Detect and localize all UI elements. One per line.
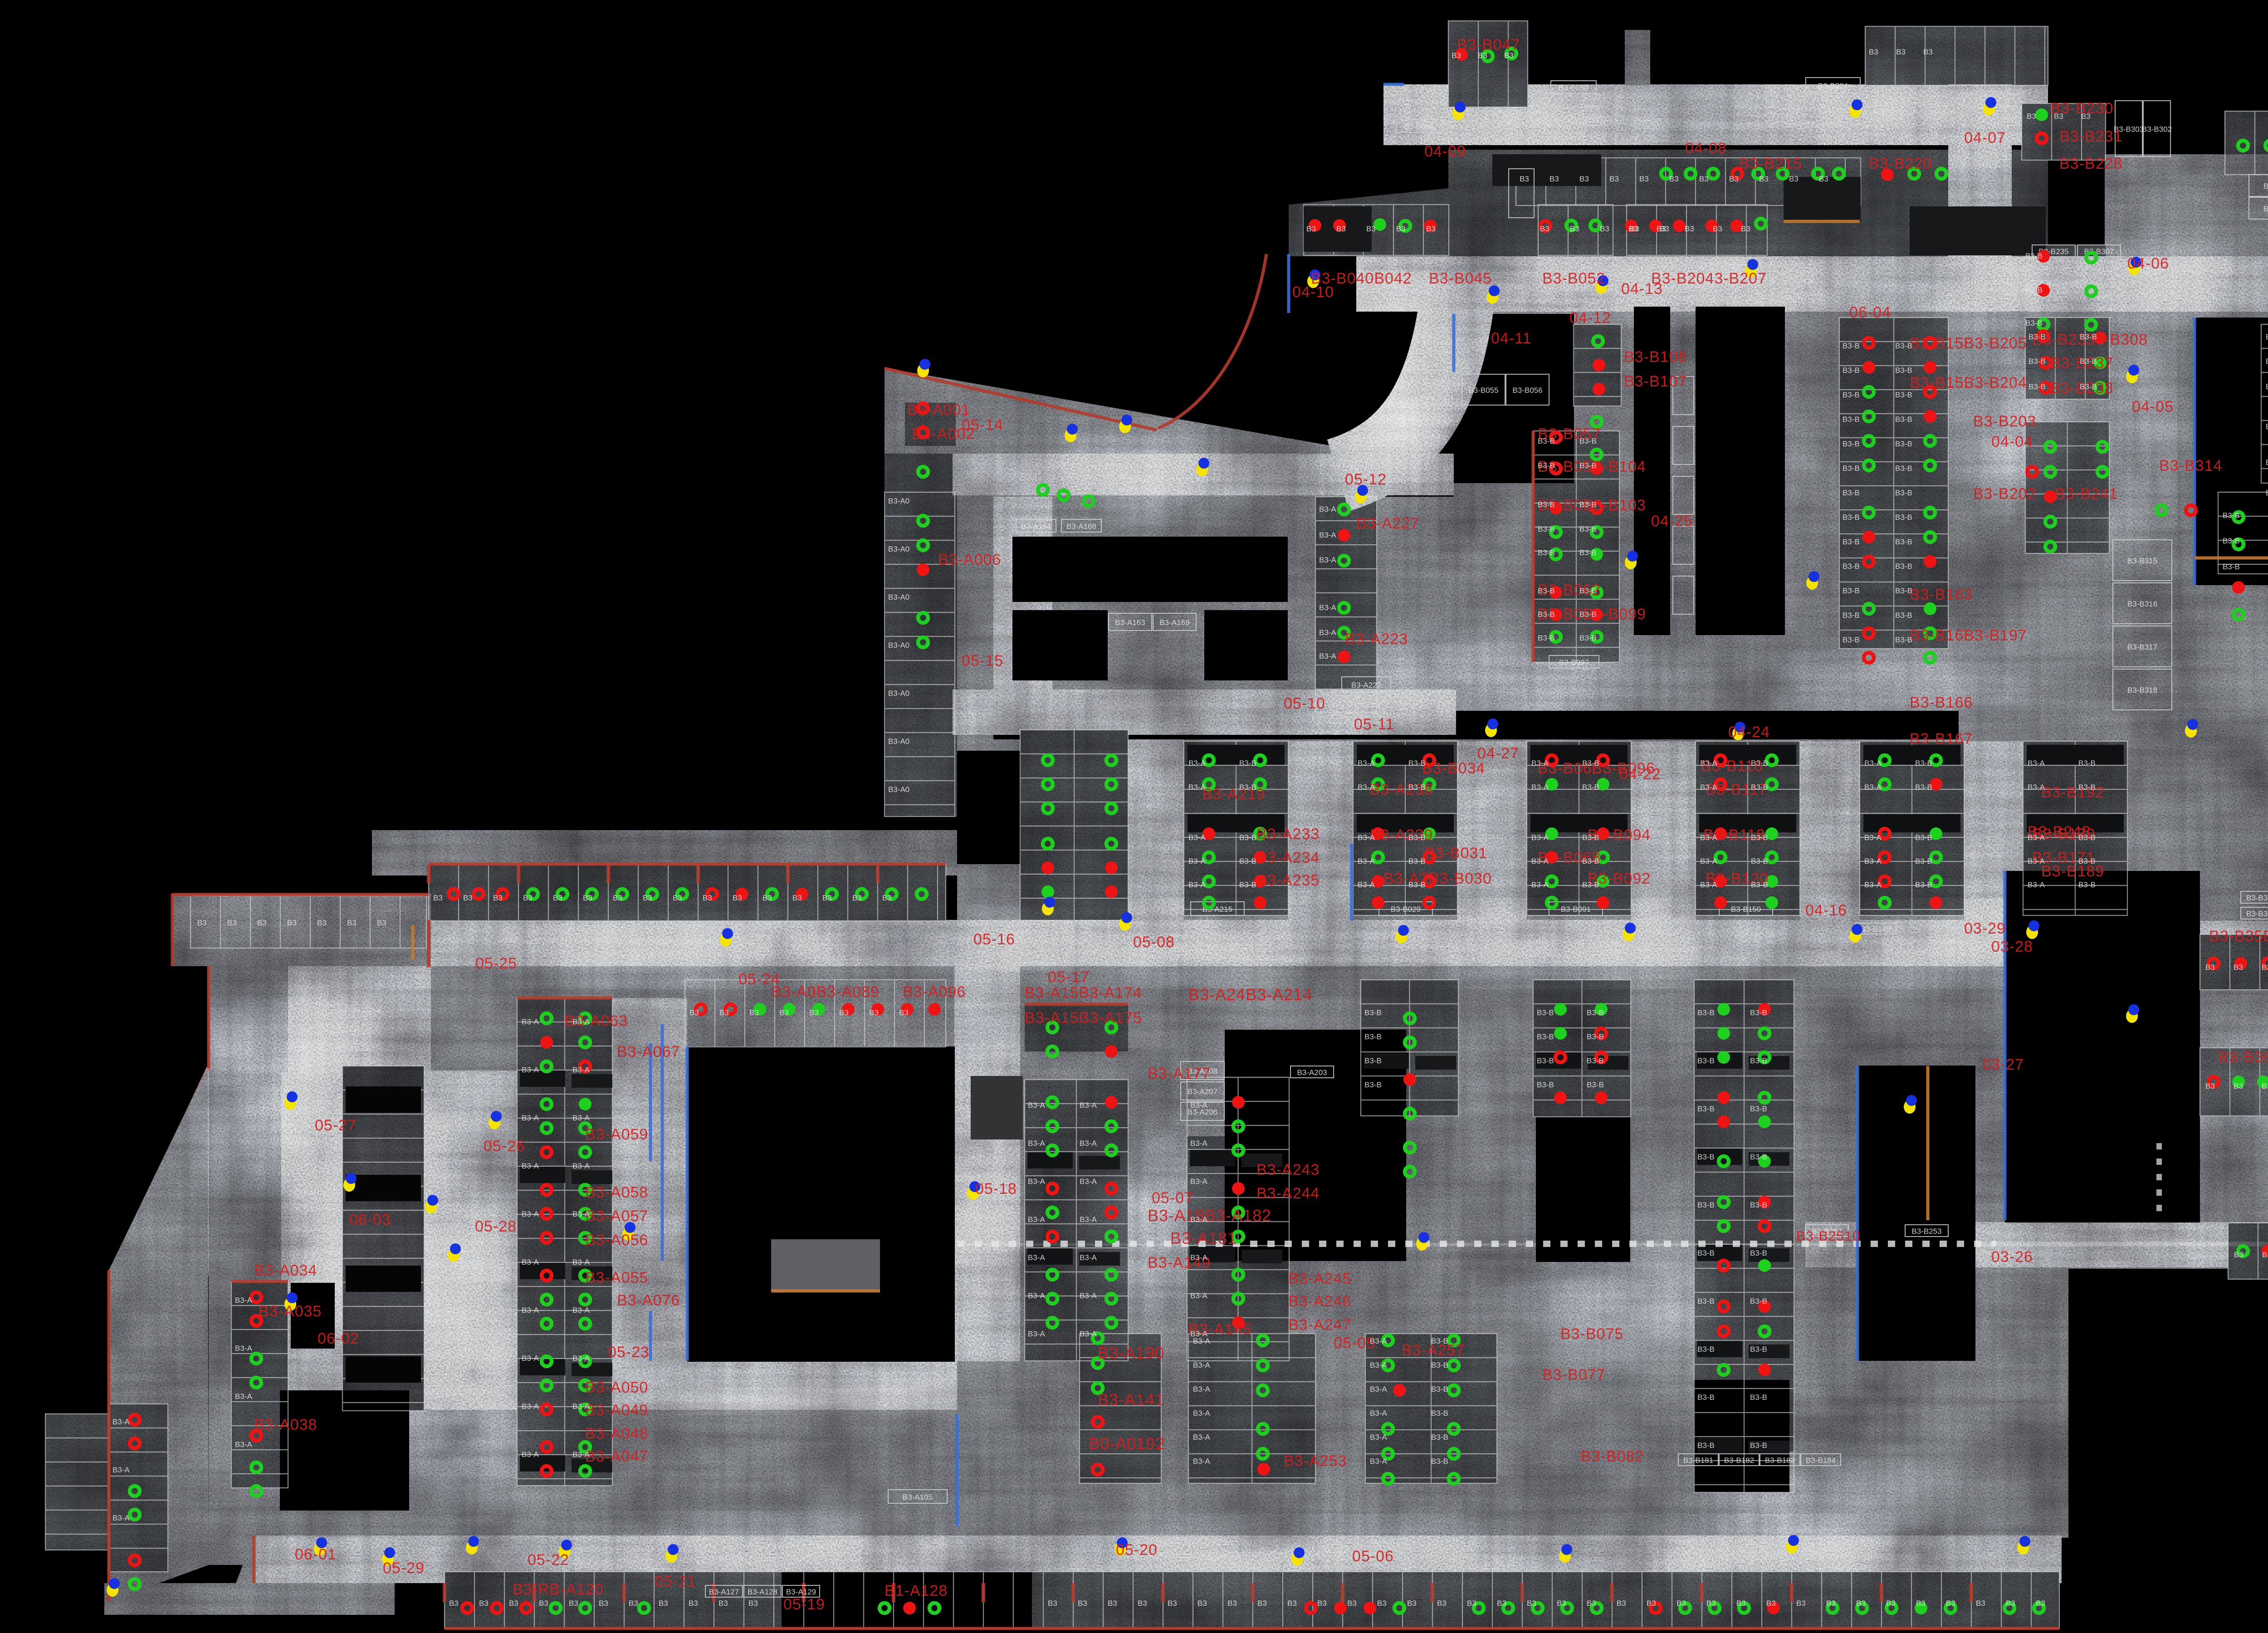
svg-text:B3-B2043-B207: B3-B2043-B207	[1651, 270, 1767, 287]
svg-text:B3-B: B3-B	[1431, 1337, 1448, 1345]
svg-text:B3: B3	[1452, 51, 1461, 60]
svg-text:B3-A0B3-A089: B3-A0B3-A089	[771, 983, 880, 1001]
svg-text:B3-B: B3-B	[1750, 1297, 1767, 1305]
svg-text:B3: B3	[2262, 1251, 2268, 1259]
svg-text:B3: B3	[1336, 225, 1346, 233]
svg-text:B3-B181: B3-B181	[1683, 1456, 1713, 1465]
svg-text:B3-B: B3-B	[1697, 1201, 1715, 1209]
svg-text:B3-B316: B3-B316	[2127, 600, 2157, 608]
svg-text:05-26: 05-26	[484, 1138, 525, 1155]
svg-text:B3-B: B3-B	[1915, 857, 1932, 865]
svg-text:05-07: 05-07	[1152, 1189, 1193, 1207]
svg-text:B3-B: B3-B	[2078, 833, 2096, 842]
svg-text:B3-B: B3-B	[1843, 538, 1860, 546]
svg-text:B3-B: B3-B	[1587, 1008, 1604, 1017]
svg-text:B3-B: B3-B	[1750, 1153, 1767, 1161]
svg-text:04-08: 04-08	[1685, 140, 1727, 157]
svg-text:B3-B: B3-B	[1579, 610, 1597, 619]
svg-text:B3-A: B3-A	[1080, 1253, 1097, 1262]
svg-text:B3: B3	[1713, 225, 1722, 233]
svg-text:05-23: 05-23	[608, 1344, 650, 1361]
svg-text:B3: B3	[719, 1008, 729, 1017]
svg-text:B3-B: B3-B	[2223, 537, 2240, 545]
svg-text:B3-A105: B3-A105	[903, 1493, 933, 1501]
svg-text:B3: B3	[882, 894, 892, 902]
svg-text:B3-A: B3-A	[235, 1440, 252, 1449]
svg-text:05-18: 05-18	[975, 1180, 1017, 1198]
svg-text:B3-A207: B3-A207	[1188, 1087, 1217, 1096]
svg-text:B3-B149: B3-B149	[1861, 925, 1891, 934]
svg-text:B3: B3	[479, 1599, 489, 1608]
svg-text:B3-A: B3-A	[1531, 857, 1549, 865]
svg-text:06-03: 06-03	[349, 1211, 391, 1228]
svg-text:B3-B: B3-B	[2223, 511, 2240, 520]
svg-text:B3: B3	[2262, 1082, 2268, 1090]
svg-text:B3-A247: B3-A247	[1288, 1316, 1351, 1334]
svg-text:B3-A: B3-A	[1190, 1253, 1207, 1262]
svg-text:B3-B220: B3-B220	[1869, 155, 1932, 172]
svg-text:B3: B3	[1407, 1599, 1417, 1608]
svg-text:B3: B3	[1647, 1599, 1656, 1608]
svg-text:B3-A049: B3-A049	[585, 1402, 648, 1419]
svg-text:B3-A: B3-A	[522, 1306, 539, 1315]
svg-text:B3-B: B3-B	[1843, 415, 1860, 424]
svg-text:B3: B3	[257, 919, 267, 927]
svg-text:B3: B3	[197, 919, 207, 927]
svg-text:B3-B: B3-B	[1579, 437, 1597, 445]
svg-text:B3-B: B3-B	[2025, 286, 2043, 294]
svg-text:B3: B3	[643, 894, 652, 902]
svg-text:B3: B3	[347, 919, 357, 927]
svg-text:B3: B3	[1923, 48, 1933, 56]
svg-text:B3-A: B3-A	[1080, 1139, 1097, 1148]
svg-text:B3-A056: B3-A056	[585, 1232, 648, 1249]
svg-text:B3-B: B3-B	[1895, 562, 1912, 571]
svg-text:B3-A177: B3-A177	[1148, 1065, 1211, 1082]
svg-text:B3-B224: B3-B224	[1818, 82, 1848, 90]
svg-text:05-28: 05-28	[475, 1218, 517, 1235]
svg-text:05-27: 05-27	[315, 1117, 357, 1134]
svg-text:B3-A: B3-A	[1193, 1385, 1210, 1393]
svg-text:B3-A: B3-A	[1028, 1291, 1045, 1300]
svg-text:B3-B077: B3-B077	[1542, 1366, 1605, 1384]
svg-text:B3: B3	[1699, 175, 1709, 183]
svg-text:B3: B3	[1657, 225, 1666, 233]
svg-text:B3: B3	[1048, 1599, 1057, 1608]
svg-text:B3-A2B3-B030: B3-A2B3-B030	[1383, 870, 1492, 887]
svg-text:B3-B183: B3-B183	[1765, 1456, 1795, 1465]
svg-text:B3-A006: B3-A006	[938, 551, 1001, 568]
svg-text:B3: B3	[2262, 963, 2268, 972]
svg-text:B3-A203: B3-A203	[1297, 1068, 1327, 1077]
svg-text:B3-B: B3-B	[1538, 610, 1555, 619]
svg-text:B3-A168: B3-A168	[1066, 522, 1096, 531]
svg-text:B3-B: B3-B	[1697, 1153, 1715, 1161]
svg-text:B3-B346: B3-B346	[2246, 909, 2268, 918]
svg-text:B3: B3	[1677, 1599, 1686, 1608]
svg-text:B3: B3	[1426, 225, 1436, 233]
svg-text:B3: B3	[2081, 112, 2091, 121]
svg-text:B3-A: B3-A	[1531, 833, 1549, 842]
svg-text:B3-B052: B3-B052	[1542, 270, 1605, 287]
svg-text:B3: B3	[703, 894, 712, 902]
svg-text:B3-B: B3-B	[1750, 1201, 1767, 1209]
svg-text:B3-A: B3-A	[112, 1418, 130, 1426]
svg-text:B3: B3	[1856, 1599, 1866, 1608]
svg-text:B3-A: B3-A	[235, 1344, 252, 1353]
svg-text:05-12: 05-12	[1345, 471, 1387, 488]
svg-text:B3: B3	[287, 919, 297, 927]
svg-text:05-15: 05-15	[962, 652, 1003, 670]
svg-text:B3-A181: B3-A181	[1170, 1229, 1237, 1247]
svg-text:05-25: 05-25	[475, 955, 517, 972]
svg-text:B3-B034: B3-B034	[1422, 760, 1485, 777]
svg-text:B3-A244: B3-A244	[1256, 1185, 1320, 1202]
svg-text:B3: B3	[1579, 175, 1589, 183]
svg-text:B3: B3	[1789, 175, 1799, 183]
svg-text:B3-A: B3-A	[2028, 857, 2045, 865]
svg-text:B3-B166: B3-B166	[1910, 694, 1973, 711]
svg-text:B3-B: B3-B	[1895, 342, 1912, 350]
svg-text:B3-B: B3-B	[1751, 857, 1768, 865]
svg-text:03-29: 03-29	[1964, 920, 2006, 937]
svg-text:B3: B3	[2036, 1599, 2045, 1608]
svg-text:B3-B: B3-B	[1579, 587, 1597, 595]
svg-text:B3-B029: B3-B029	[1391, 905, 1421, 914]
svg-text:B3-B35B3-B354: B3-B35B3-B354	[2209, 928, 2268, 945]
svg-text:B3-B16B3-B197: B3-B16B3-B197	[1910, 627, 2027, 644]
svg-text:B3-A: B3-A	[1358, 857, 1375, 865]
svg-text:B3-B: B3-B	[1697, 1105, 1715, 1113]
svg-text:B3: B3	[809, 1008, 819, 1017]
svg-text:B3-B: B3-B	[1408, 783, 1426, 792]
svg-text:B3: B3	[1819, 175, 1828, 183]
svg-text:B3-A127: B3-A127	[709, 1588, 739, 1596]
svg-text:B3-A234: B3-A234	[1256, 849, 1320, 866]
svg-text:B3-B: B3-B	[2028, 382, 2046, 391]
svg-text:B3: B3	[1504, 51, 1514, 60]
svg-text:B3: B3	[539, 1599, 548, 1608]
svg-text:B3-A169: B3-A169	[1159, 618, 1189, 627]
svg-text:B3-A: B3-A	[1370, 1457, 1387, 1466]
svg-text:B3-A: B3-A	[1080, 1291, 1097, 1300]
svg-text:B3-B: B3-B	[1538, 634, 1555, 642]
svg-text:B3-B369: B3-B369	[2218, 1049, 2268, 1066]
svg-text:B3-A: B3-A	[1188, 759, 1206, 768]
svg-text:B3-A055: B3-A055	[585, 1269, 648, 1286]
svg-text:B3: B3	[553, 894, 562, 902]
svg-text:B3-B: B3-B	[1895, 415, 1912, 424]
svg-text:B3: B3	[613, 894, 622, 902]
svg-text:B3: B3	[1549, 175, 1559, 183]
svg-text:B3-B: B3-B	[1750, 1441, 1767, 1450]
svg-text:B3: B3	[1478, 51, 1487, 60]
svg-text:B3-B202: B3-B202	[1973, 485, 2036, 503]
svg-text:B3-B: B3-B	[1579, 525, 1597, 533]
svg-text:B3-B: B3-B	[1697, 1441, 1715, 1450]
svg-text:B3-A: B3-A	[1700, 759, 1717, 768]
svg-text:B3-B: B3-B	[1239, 880, 1256, 889]
svg-text:B3-B318: B3-B318	[2127, 686, 2157, 694]
svg-text:B3: B3	[2006, 1599, 2015, 1608]
svg-text:B3-B055: B3-B055	[1468, 386, 1498, 395]
svg-text:B3-B2510: B3-B2510	[1796, 1229, 1860, 1244]
svg-text:B3: B3	[839, 1008, 849, 1017]
svg-text:B3-A: B3-A	[572, 1402, 590, 1411]
svg-text:B3-A: B3-A	[1700, 880, 1717, 889]
svg-text:B3: B3	[1540, 225, 1549, 233]
svg-text:05-20: 05-20	[1116, 1541, 1158, 1559]
svg-text:05-22: 05-22	[528, 1551, 569, 1569]
svg-text:B3: B3	[377, 919, 386, 927]
svg-text:B3-B: B3-B	[1697, 1249, 1715, 1257]
svg-text:B3-B15B3-B204: B3-B15B3-B204	[1910, 374, 2027, 391]
svg-text:B3-A: B3-A	[1358, 880, 1375, 889]
svg-text:B3: B3	[869, 1008, 879, 1017]
svg-text:B3-A: B3-A	[572, 1017, 590, 1026]
svg-text:B3-A164: B3-A164	[1021, 522, 1051, 531]
svg-text:B3-B: B3-B	[1431, 1385, 1448, 1393]
svg-text:B3-B: B3-B	[1239, 783, 1256, 792]
svg-text:B3-B: B3-B	[2025, 252, 2043, 260]
svg-text:B3-B: B3-B	[1915, 833, 1932, 842]
svg-text:03-26: 03-26	[1991, 1248, 2033, 1266]
svg-text:B3: B3	[763, 894, 772, 902]
svg-text:B3-A0: B3-A0	[888, 641, 909, 650]
svg-text:B3: B3	[1869, 48, 1878, 56]
svg-text:B3-B184: B3-B184	[1806, 1456, 1836, 1465]
svg-text:05-24: 05-24	[738, 971, 780, 988]
svg-text:B3-B: B3-B	[1582, 783, 1599, 792]
svg-text:B3-A034: B3-A034	[254, 1262, 317, 1279]
svg-text:B3-B: B3-B	[2223, 562, 2240, 571]
svg-text:B3-B: B3-B	[1538, 500, 1555, 509]
svg-text:B3-B: B3-B	[1697, 1393, 1715, 1402]
svg-text:B3: B3	[463, 894, 473, 902]
svg-text:B3: B3	[1306, 225, 1316, 233]
svg-text:B3-B045: B3-B045	[1429, 270, 1492, 287]
svg-text:B3: B3	[1570, 225, 1579, 233]
svg-text:B3-A: B3-A	[1319, 505, 1336, 513]
svg-text:B3-A: B3-A	[1028, 1253, 1045, 1262]
svg-text:B3-B: B3-B	[2078, 783, 2096, 792]
svg-text:B3-B: B3-B	[1895, 440, 1912, 448]
svg-text:B3-A: B3-A	[235, 1296, 252, 1305]
svg-text:B3: B3	[1527, 1599, 1536, 1608]
svg-text:B3: B3	[1685, 225, 1694, 233]
svg-text:B3-A: B3-A	[2028, 833, 2045, 842]
svg-text:B3-B: B3-B	[1431, 1433, 1448, 1442]
svg-text:B3-B: B3-B	[1431, 1409, 1448, 1418]
svg-text:B3-B: B3-B	[1750, 1345, 1767, 1354]
svg-text:B3: B3	[1609, 175, 1619, 183]
svg-text:B3-B163: B3-B163	[1910, 586, 1973, 603]
svg-text:04-07: 04-07	[1964, 129, 2006, 147]
svg-text:B3-A24B3-A214: B3-A24B3-A214	[1188, 985, 1312, 1004]
svg-text:B3-B082: B3-B082	[1581, 1448, 1644, 1465]
svg-text:B3-A: B3-A	[1190, 1291, 1207, 1300]
svg-text:B3-A227: B3-A227	[1356, 515, 1419, 532]
svg-text:B3-B: B3-B	[1751, 880, 1768, 889]
svg-text:B3: B3	[1976, 1599, 1985, 1608]
svg-text:04-24: 04-24	[1728, 724, 1770, 741]
svg-text:05-19: 05-19	[783, 1596, 825, 1613]
svg-text:B3: B3	[779, 1008, 789, 1017]
svg-text:B3-A: B3-A	[522, 1258, 539, 1266]
svg-text:B3: B3	[673, 894, 682, 902]
svg-text:B3-A: B3-A	[1370, 1337, 1387, 1345]
svg-text:B3-B: B3-B	[1364, 1056, 1382, 1065]
svg-text:B3-A: B3-A	[112, 1514, 130, 1522]
svg-text:B3: B3	[509, 1599, 518, 1608]
svg-text:B3: B3	[1497, 1599, 1506, 1608]
svg-text:B3-B: B3-B	[1895, 513, 1912, 522]
svg-text:B3-A: B3-A	[1319, 531, 1336, 539]
svg-text:B3-A: B3-A	[522, 1210, 539, 1218]
svg-text:B3-B: B3-B	[1750, 1105, 1767, 1113]
svg-text:B3-A253: B3-A253	[1284, 1452, 1347, 1470]
svg-text:B3-B: B3-B	[1895, 391, 1912, 399]
svg-text:04-06: 04-06	[2127, 255, 2169, 272]
svg-text:B3-A: B3-A	[1319, 652, 1336, 660]
svg-text:B3: B3	[1168, 1599, 1177, 1608]
svg-text:B3-A: B3-A	[522, 1017, 539, 1026]
svg-text:B3-A: B3-A	[1370, 1385, 1387, 1393]
svg-text:B3: B3	[852, 894, 862, 902]
svg-text:B0-A0192: B0-A0192	[1089, 1434, 1165, 1453]
svg-text:04-27: 04-27	[1477, 745, 1519, 762]
svg-text:B3-A245: B3-A245	[1288, 1270, 1351, 1287]
svg-text:B3-A: B3-A	[572, 1258, 590, 1266]
svg-text:04-09: 04-09	[1424, 143, 1466, 160]
svg-text:B3-A050: B3-A050	[585, 1379, 648, 1396]
svg-text:B3: B3	[689, 1008, 699, 1017]
svg-text:B3: B3	[1467, 1599, 1476, 1608]
svg-text:B3-A067: B3-A067	[617, 1043, 680, 1061]
svg-text:B3: B3	[1078, 1599, 1087, 1608]
svg-text:B3-B031: B3-B031	[1424, 845, 1487, 862]
svg-text:05-29: 05-29	[383, 1560, 425, 1577]
svg-text:B3-A096: B3-A096	[903, 983, 966, 1001]
svg-text:B3-B: B3-B	[1895, 611, 1912, 620]
svg-text:B3: B3	[629, 1599, 638, 1608]
svg-text:B3: B3	[1587, 1599, 1596, 1608]
svg-text:B3-A: B3-A	[1190, 1101, 1207, 1110]
svg-text:B3-B: B3-B	[1843, 464, 1860, 473]
svg-text:B3-A: B3-A	[1080, 1101, 1097, 1110]
svg-text:B3-A: B3-A	[1193, 1433, 1210, 1442]
svg-text:B3-A: B3-A	[1864, 833, 1882, 842]
svg-text:B3-B: B3-B	[1895, 587, 1912, 595]
svg-text:B3-A129: B3-A129	[786, 1588, 816, 1596]
svg-text:B3-B: B3-B	[1895, 489, 1912, 497]
svg-text:B3-A: B3-A	[1080, 1215, 1097, 1224]
svg-text:B3-B: B3-B	[1408, 833, 1426, 842]
svg-text:B3: B3	[1796, 1599, 1806, 1608]
svg-text:B3-A: B3-A	[1028, 1139, 1045, 1148]
svg-text:B3-A0: B3-A0	[888, 689, 909, 698]
svg-text:B3: B3	[1347, 1599, 1357, 1608]
svg-text:03-28: 03-28	[1991, 938, 2033, 955]
svg-text:B3-B097: B3-B097	[1559, 658, 1589, 667]
svg-text:B3-B: B3-B	[1843, 440, 1860, 448]
svg-text:B3-B: B3-B	[1537, 1032, 1554, 1041]
svg-text:B3-A: B3-A	[1864, 857, 1882, 865]
svg-text:B3: B3	[1916, 1599, 1926, 1608]
svg-text:B3: B3	[2234, 1082, 2243, 1090]
svg-text:B3-A222: B3-A222	[1351, 681, 1381, 689]
svg-text:B3: B3	[1366, 225, 1376, 233]
svg-text:B3: B3	[2234, 1251, 2244, 1259]
svg-text:B3: B3	[1886, 1599, 1896, 1608]
svg-text:B3-A0: B3-A0	[888, 545, 909, 553]
svg-text:B3-A: B3-A	[1700, 857, 1717, 865]
svg-text:B3-B: B3-B	[2080, 357, 2097, 366]
svg-text:B3-A: B3-A	[1531, 759, 1549, 768]
svg-text:B3-B: B3-B	[2028, 357, 2046, 366]
svg-text:B3-A15B3-A175: B3-A15B3-A175	[1025, 1009, 1142, 1027]
svg-text:B3-A058: B3-A058	[585, 1184, 648, 1201]
svg-text:B3-A: B3-A	[1700, 833, 1717, 842]
svg-text:04-04: 04-04	[1991, 433, 2033, 450]
svg-text:B3-A: B3-A	[522, 1066, 539, 1074]
svg-text:B3-A: B3-A	[1319, 603, 1336, 612]
svg-text:B3-B: B3-B	[1697, 1056, 1715, 1065]
svg-text:B3-B: B3-B	[1431, 1457, 1448, 1466]
svg-text:B3-A059: B3-A059	[585, 1126, 648, 1143]
svg-text:B3-B: B3-B	[2078, 857, 2096, 865]
svg-text:B3-B: B3-B	[2080, 382, 2097, 391]
svg-text:B3-B: B3-B	[1538, 461, 1555, 470]
svg-text:B3-B182: B3-B182	[1724, 1456, 1754, 1465]
svg-text:B3-B: B3-B	[1915, 880, 1932, 889]
svg-text:B1-A128: B1-A128	[885, 1582, 948, 1599]
svg-text:B3-B: B3-B	[1537, 1081, 1554, 1089]
svg-text:B3: B3	[1396, 225, 1406, 233]
svg-text:B3-A: B3-A	[572, 1450, 590, 1459]
svg-text:05-21: 05-21	[655, 1573, 696, 1590]
svg-text:B3-B: B3-B	[2266, 458, 2268, 467]
svg-text:B3-A141: B3-A141	[1098, 1390, 1164, 1409]
svg-text:B3-B: B3-B	[1239, 857, 1256, 865]
svg-text:B3-A: B3-A	[2028, 759, 2045, 768]
svg-text:B3-B107: B3-B107	[1624, 373, 1687, 390]
svg-text:B3-B: B3-B	[1697, 1345, 1715, 1354]
svg-text:B3-B046: B3-B046	[1404, 122, 1434, 131]
svg-text:B3-B: B3-B	[2078, 759, 2096, 768]
svg-text:B3-B: B3-B	[1843, 636, 1860, 644]
svg-text:B3: B3	[1946, 1599, 1955, 1608]
svg-text:B3: B3	[1669, 175, 1679, 183]
svg-text:B3-B: B3-B	[1895, 366, 1912, 375]
svg-text:B3: B3	[1896, 48, 1906, 56]
svg-text:05-10: 05-10	[1284, 695, 1325, 712]
svg-text:B3-A: B3-A	[1028, 1177, 1045, 1186]
svg-text:B3: B3	[719, 1599, 728, 1608]
svg-text:B3: B3	[792, 894, 802, 902]
svg-text:B3: B3	[1826, 1599, 1836, 1608]
svg-text:B3-B: B3-B	[1751, 783, 1768, 792]
svg-text:B3-B108: B3-B108	[1624, 348, 1687, 366]
svg-text:B3-B050: B3-B050	[1559, 83, 1589, 92]
svg-text:04-12: 04-12	[1569, 309, 1611, 327]
svg-text:B3: B3	[748, 1599, 758, 1608]
svg-text:B3: B3	[569, 1599, 578, 1608]
svg-text:B3-A047: B3-A047	[585, 1448, 648, 1465]
svg-text:B3-B: B3-B	[1537, 1008, 1554, 1017]
svg-text:B3: B3	[2027, 112, 2036, 121]
svg-text:B3-B: B3-B	[1408, 880, 1426, 889]
